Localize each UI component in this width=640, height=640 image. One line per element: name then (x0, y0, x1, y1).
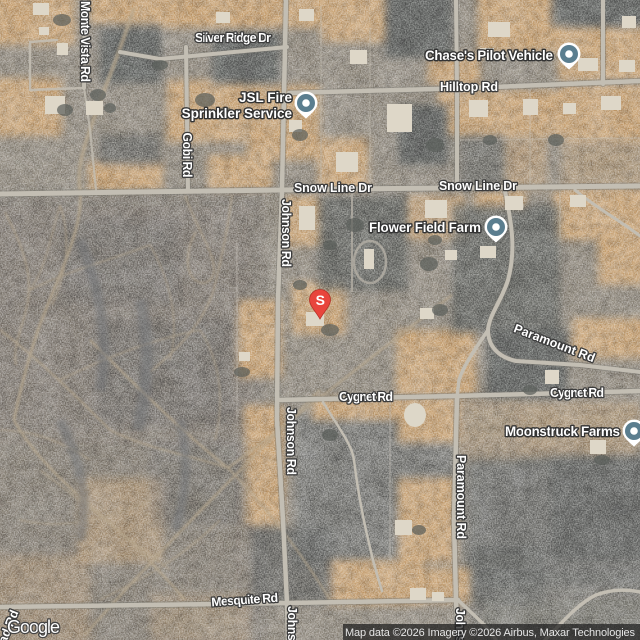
svg-text:Cygnet Rd: Cygnet Rd (339, 390, 393, 404)
svg-text:Chase's Pilot Vehicle: Chase's Pilot Vehicle (425, 48, 553, 63)
svg-text:Flower Field Farm: Flower Field Farm (369, 220, 481, 235)
svg-text:Johnson Rd: Johnson Rd (279, 199, 293, 267)
svg-text:Johnson Rd: Johnson Rd (284, 407, 298, 475)
svg-text:Snow Line Dr: Snow Line Dr (439, 179, 517, 193)
svg-text:S: S (316, 292, 325, 308)
svg-text:Snow Line Dr: Snow Line Dr (294, 181, 372, 195)
svg-text:Silver Ridge Dr: Silver Ridge Dr (195, 31, 271, 45)
svg-text:JSL Fire: JSL Fire (239, 90, 293, 105)
svg-text:Sprinkler Service: Sprinkler Service (182, 106, 293, 121)
svg-text:Hilltop Rd: Hilltop Rd (440, 80, 498, 94)
svg-text:Map data ©2026 Imagery ©2026 A: Map data ©2026 Imagery ©2026 Airbus, Max… (345, 627, 636, 639)
svg-text:Paramount Rd: Paramount Rd (454, 455, 468, 539)
svg-text:Cygnet Rd: Cygnet Rd (550, 386, 604, 400)
svg-text:Gobi Rd: Gobi Rd (180, 133, 194, 178)
svg-text:Monte Vista Rd: Monte Vista Rd (78, 1, 92, 82)
svg-text:Johnson Rd: Johnson Rd (285, 606, 299, 640)
svg-text:Moonstruck Farms: Moonstruck Farms (505, 424, 620, 439)
svg-text:Google: Google (7, 617, 60, 637)
